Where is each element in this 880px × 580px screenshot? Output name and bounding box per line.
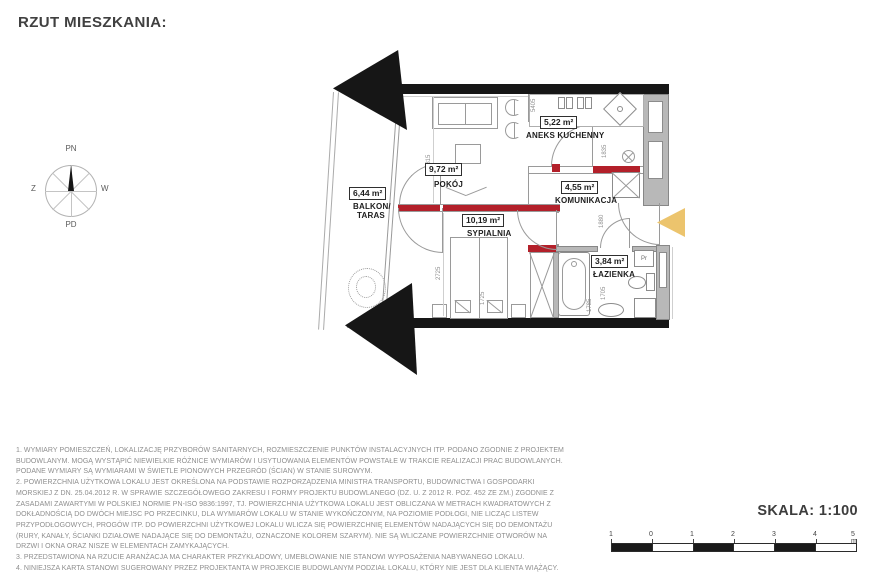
plant-inner [356, 276, 376, 298]
cooktop-burner-3 [577, 97, 584, 109]
scale-bar-segments [611, 543, 857, 552]
compass-west-label: Z [31, 184, 36, 193]
cooktop-burner-4 [585, 97, 592, 109]
room-name-balkon-1: BALKON/ [353, 202, 391, 211]
top-black-arrow-icon [333, 50, 407, 130]
bottom-wall [412, 318, 669, 328]
kitchen-sink-drain [617, 106, 623, 112]
compass-rose-icon: PN PD Z W [34, 146, 108, 230]
balcony-railing [318, 92, 339, 330]
scale-tick-0: 1 [609, 531, 613, 538]
dim-bath-h: 1705 [601, 287, 607, 300]
nightstand-1 [432, 304, 447, 318]
area-label-sypialnia: 10,19 m² [462, 214, 504, 227]
legal-notes: 1. WYMIARY POMIESZCZEŃ, LOKALIZACJĘ PRZY… [16, 446, 570, 574]
dim-hall: 1880 [599, 215, 605, 228]
nightstand-2 [511, 304, 526, 318]
room-name-lazienka: ŁAZIENKA [593, 270, 635, 279]
scale-tick-3: 2 [731, 531, 735, 538]
room-name-pokoj: POKÓJ [434, 180, 463, 189]
floor-plan-sheet: RZUT MIESZKANIA: PN PD Z W [0, 0, 880, 580]
entry-door-leaf [659, 203, 660, 245]
scale-tick-1: 0 [649, 531, 653, 538]
dim-bath-w: 1785 [587, 299, 593, 312]
note-1: 1. WYMIARY POMIESZCZEŃ, LOKALIZACJĘ PRZY… [16, 446, 570, 478]
entry-arrow-icon [657, 208, 685, 237]
corridor-line [672, 247, 673, 319]
scale-tick-5: 4 [813, 531, 817, 538]
sofa-cushion-divider [465, 103, 466, 125]
chair-1-back [514, 100, 515, 115]
wall-niche-1 [648, 101, 663, 133]
scale-segment-black [612, 544, 653, 551]
area-label-lazienka: 3,84 m² [591, 255, 628, 268]
chair-2-back [514, 123, 515, 138]
bathtub-drain [571, 261, 577, 267]
scale-bar: 1 0 1 2 3 4 5 m [611, 531, 857, 553]
scale-label: SKALA: 1:100 [757, 503, 858, 519]
note-3: 3. PRZEDSTAWIONA NA RZUCIE ARANŻACJA MA … [16, 553, 570, 564]
area-label-aneks: 5,22 m² [540, 116, 577, 129]
armchair-line-2 [466, 187, 487, 196]
dim-kitchen-h: 1835 [602, 145, 608, 158]
scale-segment-black [694, 544, 735, 551]
washing-machine: Pr [634, 250, 654, 267]
scale-tick-2: 1 [690, 531, 694, 538]
chair-1-opening [514, 101, 522, 114]
chair-2-opening [514, 124, 522, 137]
cooktop-burner-2 [566, 97, 573, 109]
scale-segment-white [816, 544, 856, 551]
note-2: 2. POWIERZCHNIA UŻYTKOWA LOKALU JEST OKR… [16, 478, 570, 553]
hall-bedroom-door-leaf [556, 210, 557, 250]
dim-line-sypialnia [443, 213, 444, 316]
top-wall [399, 84, 669, 94]
compass-east-label: W [101, 184, 109, 193]
bed-center-line [479, 237, 480, 319]
room-name-balkon-2: TARAS [357, 211, 385, 220]
wall-niche-3 [659, 252, 667, 288]
hall-bedroom-door-arc [517, 210, 557, 250]
dim-bed: 1725 [480, 292, 486, 305]
scale-segment-black [775, 544, 816, 551]
compass-north-label: PN [34, 144, 108, 153]
compass-south-label: PD [34, 220, 108, 229]
scale-segment-white [734, 544, 775, 551]
area-label-komunikacja: 4,55 m² [561, 181, 598, 194]
coffee-table [455, 144, 481, 164]
note-4: 4. NINIEJSZA KARTA STANOWI SUGEROWANY PR… [16, 564, 570, 575]
room-name-sypialnia: SYPIALNIA [467, 229, 511, 238]
bathroom-sink [598, 303, 624, 317]
area-label-pokoj: 9,72 m² [425, 163, 462, 176]
area-label-balkon: 6,44 m² [349, 187, 386, 200]
dim-sypialnia: 2725 [436, 267, 442, 280]
room-name-aneks: ANEKS KUCHENNY [526, 131, 604, 140]
scale-segment-white [653, 544, 694, 551]
bathroom-cabinet [634, 298, 656, 318]
page-title: RZUT MIESZKANIA: [18, 14, 167, 31]
cooktop-burner-1 [558, 97, 565, 109]
scale-tick-4: 3 [772, 531, 776, 538]
bedroom-door-arc [398, 208, 443, 253]
toilet-tank [646, 273, 655, 291]
dim-kitchen-w: 5405 [531, 99, 537, 112]
wall-niche-2 [648, 141, 663, 179]
compass-needle-icon [68, 165, 74, 191]
room-name-komunikacja: KOMUNIKACJA [555, 196, 617, 205]
